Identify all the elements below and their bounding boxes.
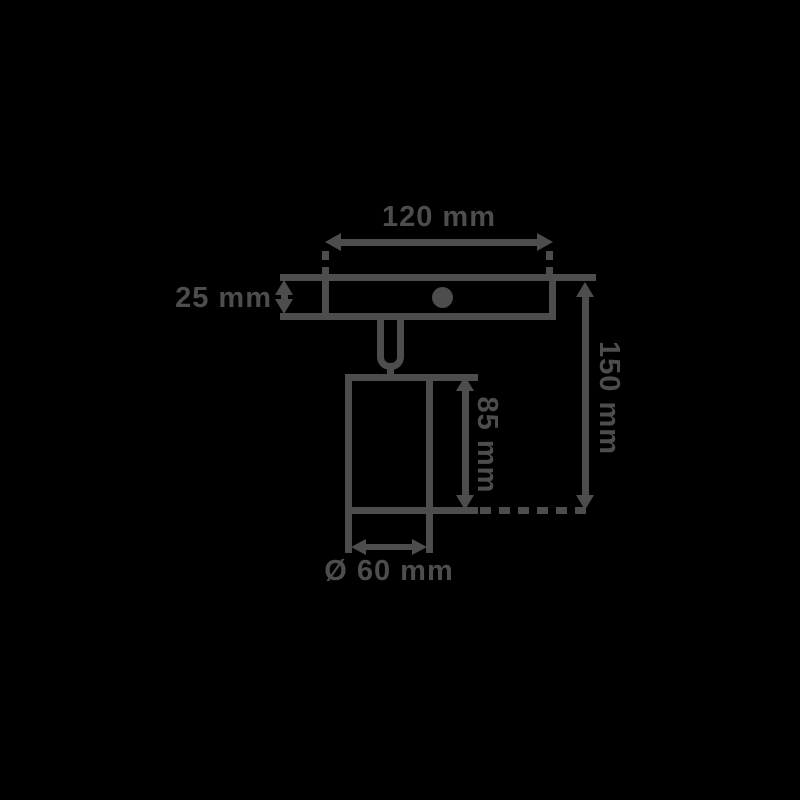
arrow-down-icon — [275, 299, 293, 314]
extension-line-left — [322, 251, 329, 274]
arrow-right-icon — [537, 233, 553, 251]
arrow-down-icon — [576, 495, 594, 510]
arrow-up-icon — [576, 282, 594, 297]
screw-hole — [432, 287, 453, 308]
spotlight-dimension-drawing: 120 mm 25 mm Ø 60 mm 85 mm 150 mm — [0, 0, 800, 800]
extension-line-overall-bottom-dashed — [480, 507, 590, 514]
extension-line-right — [546, 251, 553, 274]
dim-overall-height-line — [582, 296, 589, 496]
dim-body-height-line — [462, 390, 469, 496]
dim-overall-height-label: 150 mm — [595, 343, 623, 453]
arrow-left-icon — [351, 539, 366, 555]
arrow-up-icon — [456, 376, 474, 391]
dim-diameter-line — [365, 544, 413, 550]
arrow-up-icon — [275, 280, 293, 295]
dim-plate-height-label: 25 mm — [150, 284, 272, 313]
extension-line-overall-top — [556, 274, 596, 281]
dim-width-label: 120 mm — [340, 203, 538, 232]
arrow-right-icon — [412, 539, 427, 555]
extension-line-overall-bottom — [433, 507, 478, 514]
swivel-joint — [377, 320, 404, 370]
arrow-left-icon — [325, 233, 341, 251]
lamp-body-wall-right — [426, 514, 433, 553]
dim-body-height-label: 85 mm — [473, 395, 501, 495]
extension-line-plate-bottom — [280, 313, 324, 320]
dim-diameter-label: Ø 60 mm — [322, 557, 456, 586]
dim-width-line — [340, 239, 538, 246]
lamp-body-outline — [345, 374, 433, 514]
